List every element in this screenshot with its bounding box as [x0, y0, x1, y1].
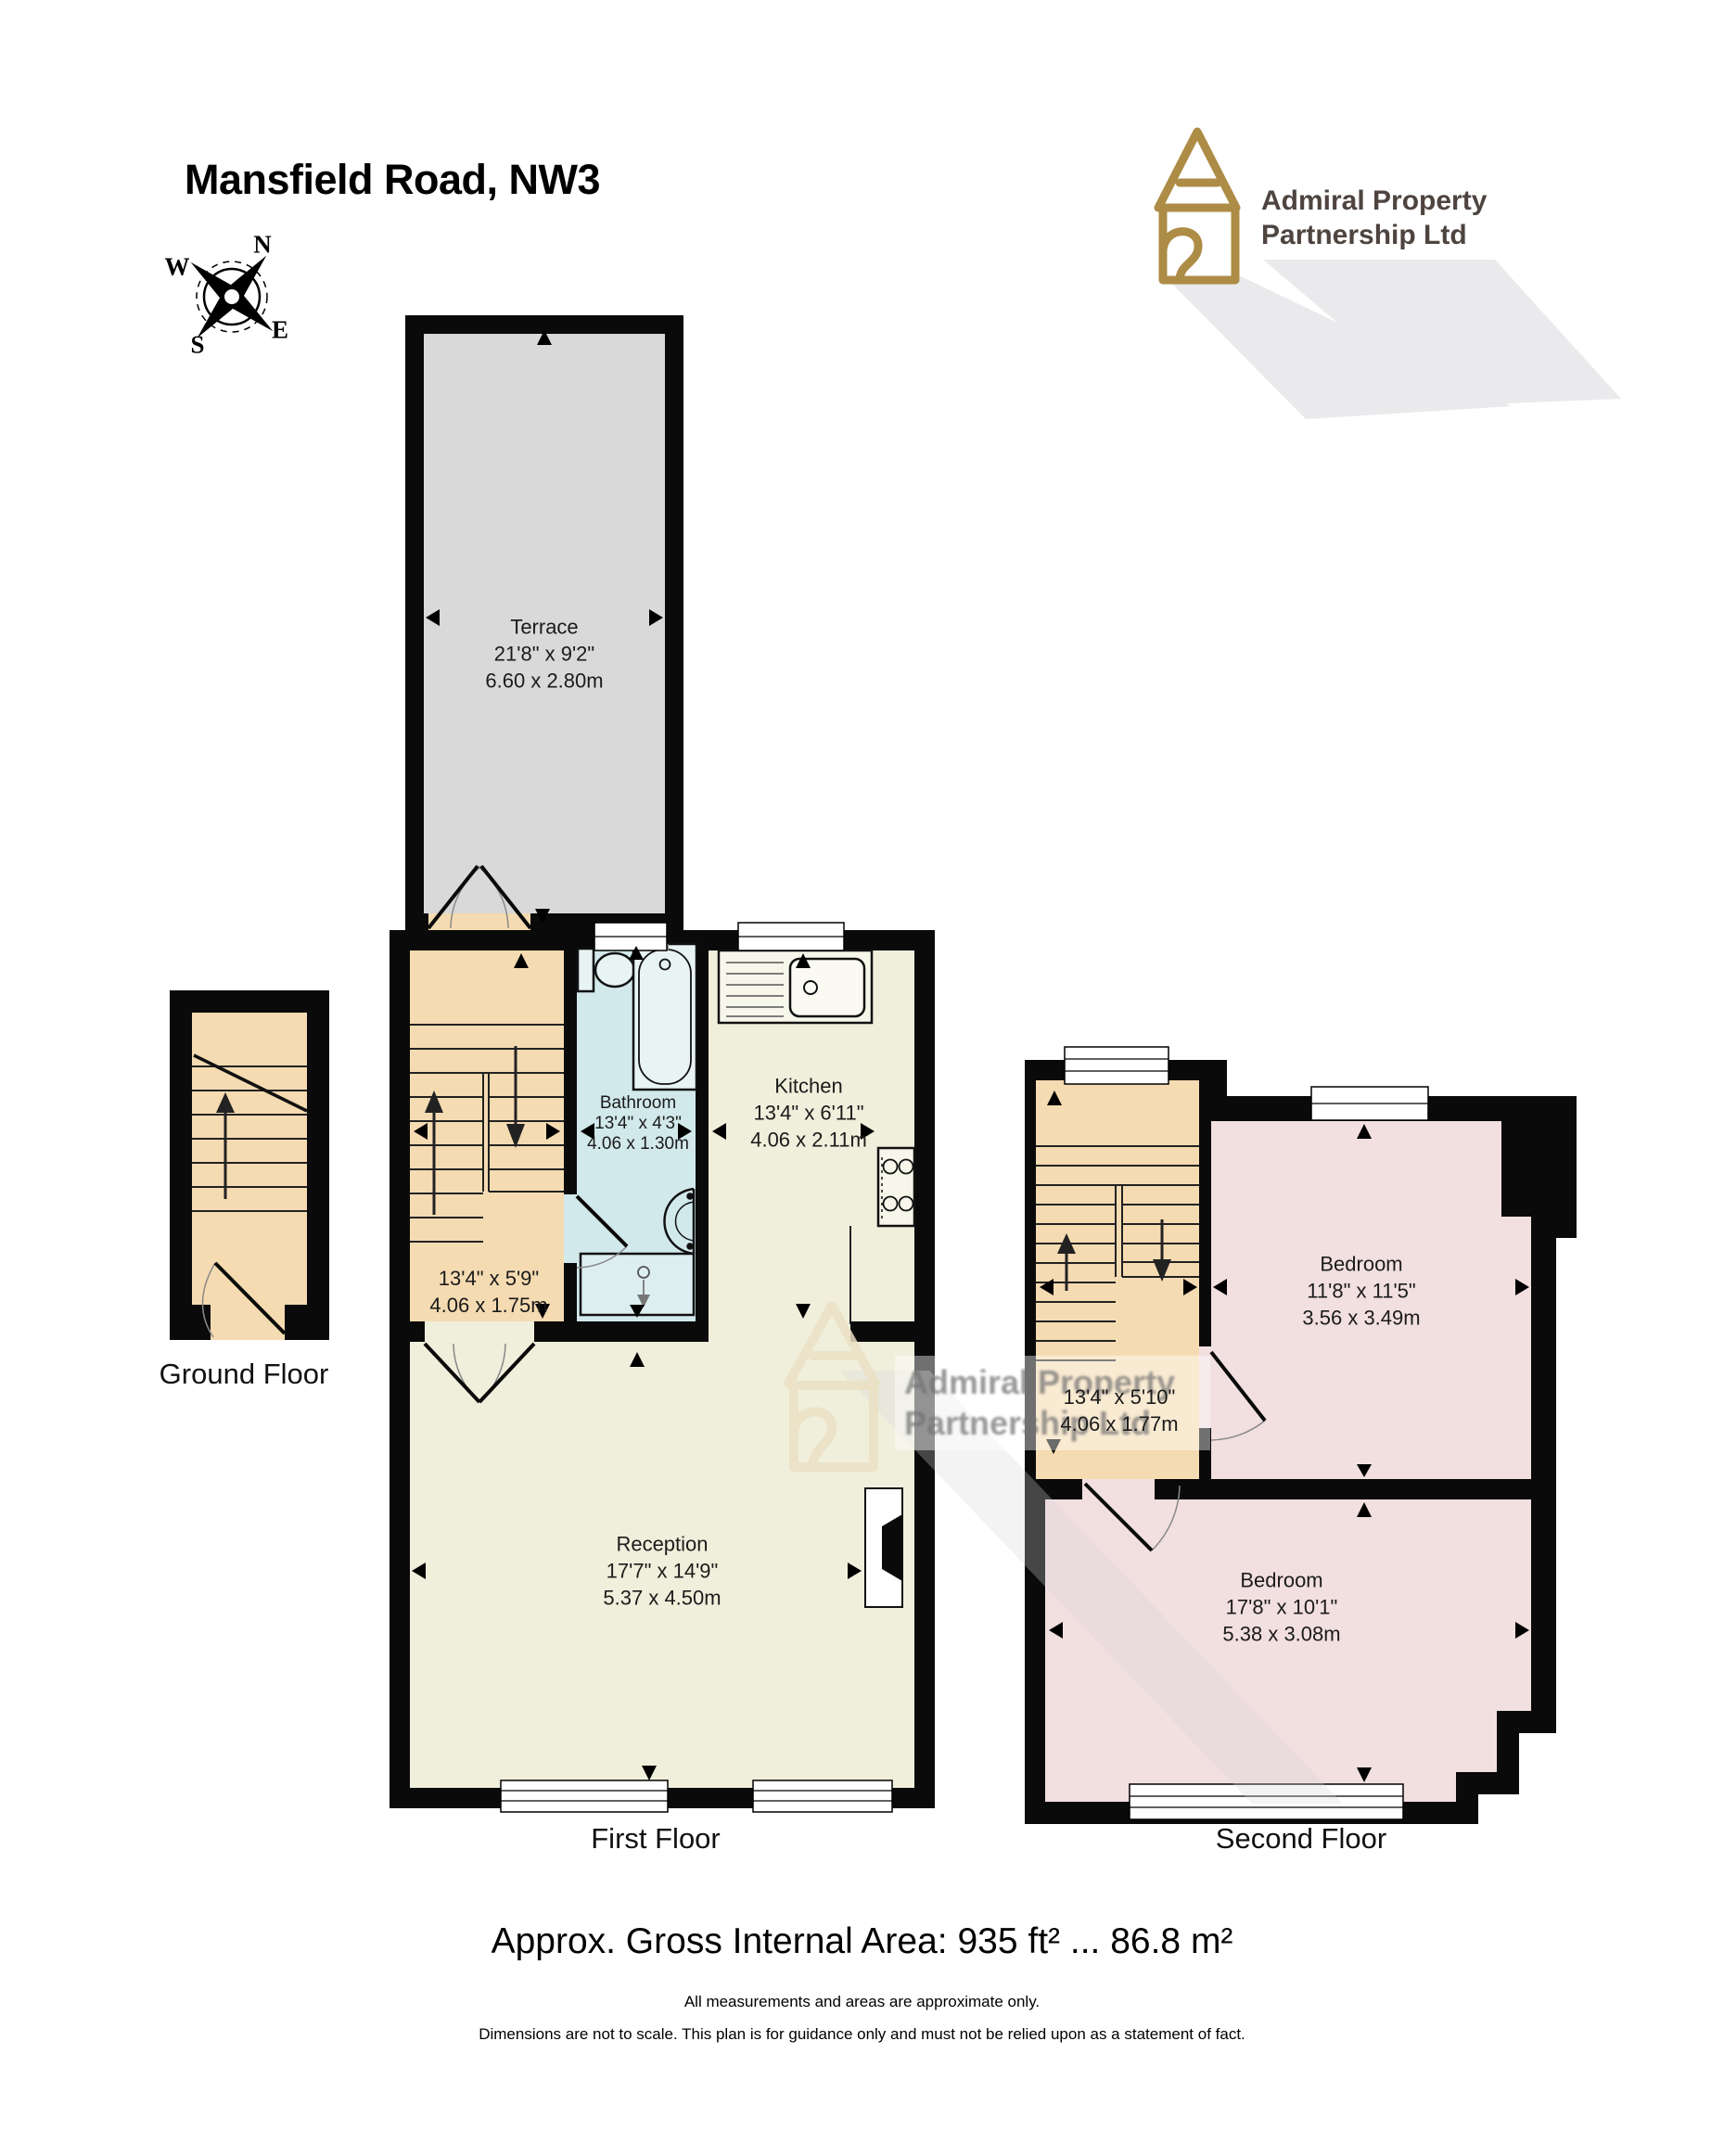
first-floor-plan	[389, 923, 935, 1812]
kitchen-label: Kitchen13'4" x 6'11"4.06 x 2.11m	[750, 1073, 867, 1154]
sf-stairs-dimensions: 13'4" x 5'10"4.06 x 1.77m	[1060, 1384, 1178, 1437]
disclaimer-line2: Dimensions are not to scale. This plan i…	[0, 2025, 1724, 2044]
page-title: Mansfield Road, NW3	[185, 156, 600, 204]
fireplace-icon	[865, 1488, 902, 1607]
terrace-label: Terrace21'8" x 9'2"6.60 x 2.80m	[485, 614, 603, 695]
toilet-icon	[578, 949, 634, 991]
agency-name-line2: Partnership Ltd	[1261, 220, 1467, 251]
compass-west-label: W	[165, 253, 190, 282]
disclaimer-line1: All measurements and areas are approxima…	[0, 1993, 1724, 2011]
compass-south-label: S	[190, 331, 204, 360]
first-floor-caption: First Floor	[591, 1822, 721, 1856]
agency-name-line1: Admiral Property	[1261, 185, 1487, 217]
ground-floor-caption: Ground Floor	[160, 1358, 329, 1391]
bathroom-label: Bathroom13'4" x 4'3"4.06 x 1.30m	[587, 1093, 689, 1155]
agency-logo-icon	[1158, 132, 1621, 419]
gross-internal-area: Approx. Gross Internal Area: 935 ft² ...…	[0, 1921, 1724, 1962]
hob-icon	[878, 1148, 914, 1226]
reception-label: Reception17'7" x 14'9"5.37 x 4.50m	[603, 1531, 721, 1612]
compass-north-label: N	[253, 231, 272, 260]
second-floor-caption: Second Floor	[1216, 1822, 1386, 1856]
compass-east-label: E	[272, 316, 288, 345]
compass-icon	[191, 256, 274, 338]
floorplan-page: Mansfield Road, NW3 N W S E Admiral Prop…	[0, 0, 1724, 2156]
ground-floor-plan	[170, 990, 329, 1340]
bathtub-icon	[633, 944, 696, 1090]
bedroom2-label: Bedroom17'8" x 10'1"5.38 x 3.08m	[1222, 1567, 1340, 1648]
ff-stairs-dimensions: 13'4" x 5'9"4.06 x 1.75m	[429, 1265, 547, 1319]
kitchen-sink-icon	[719, 950, 872, 1023]
bedroom1-label: Bedroom11'8" x 11'5"3.56 x 3.49m	[1302, 1251, 1420, 1332]
